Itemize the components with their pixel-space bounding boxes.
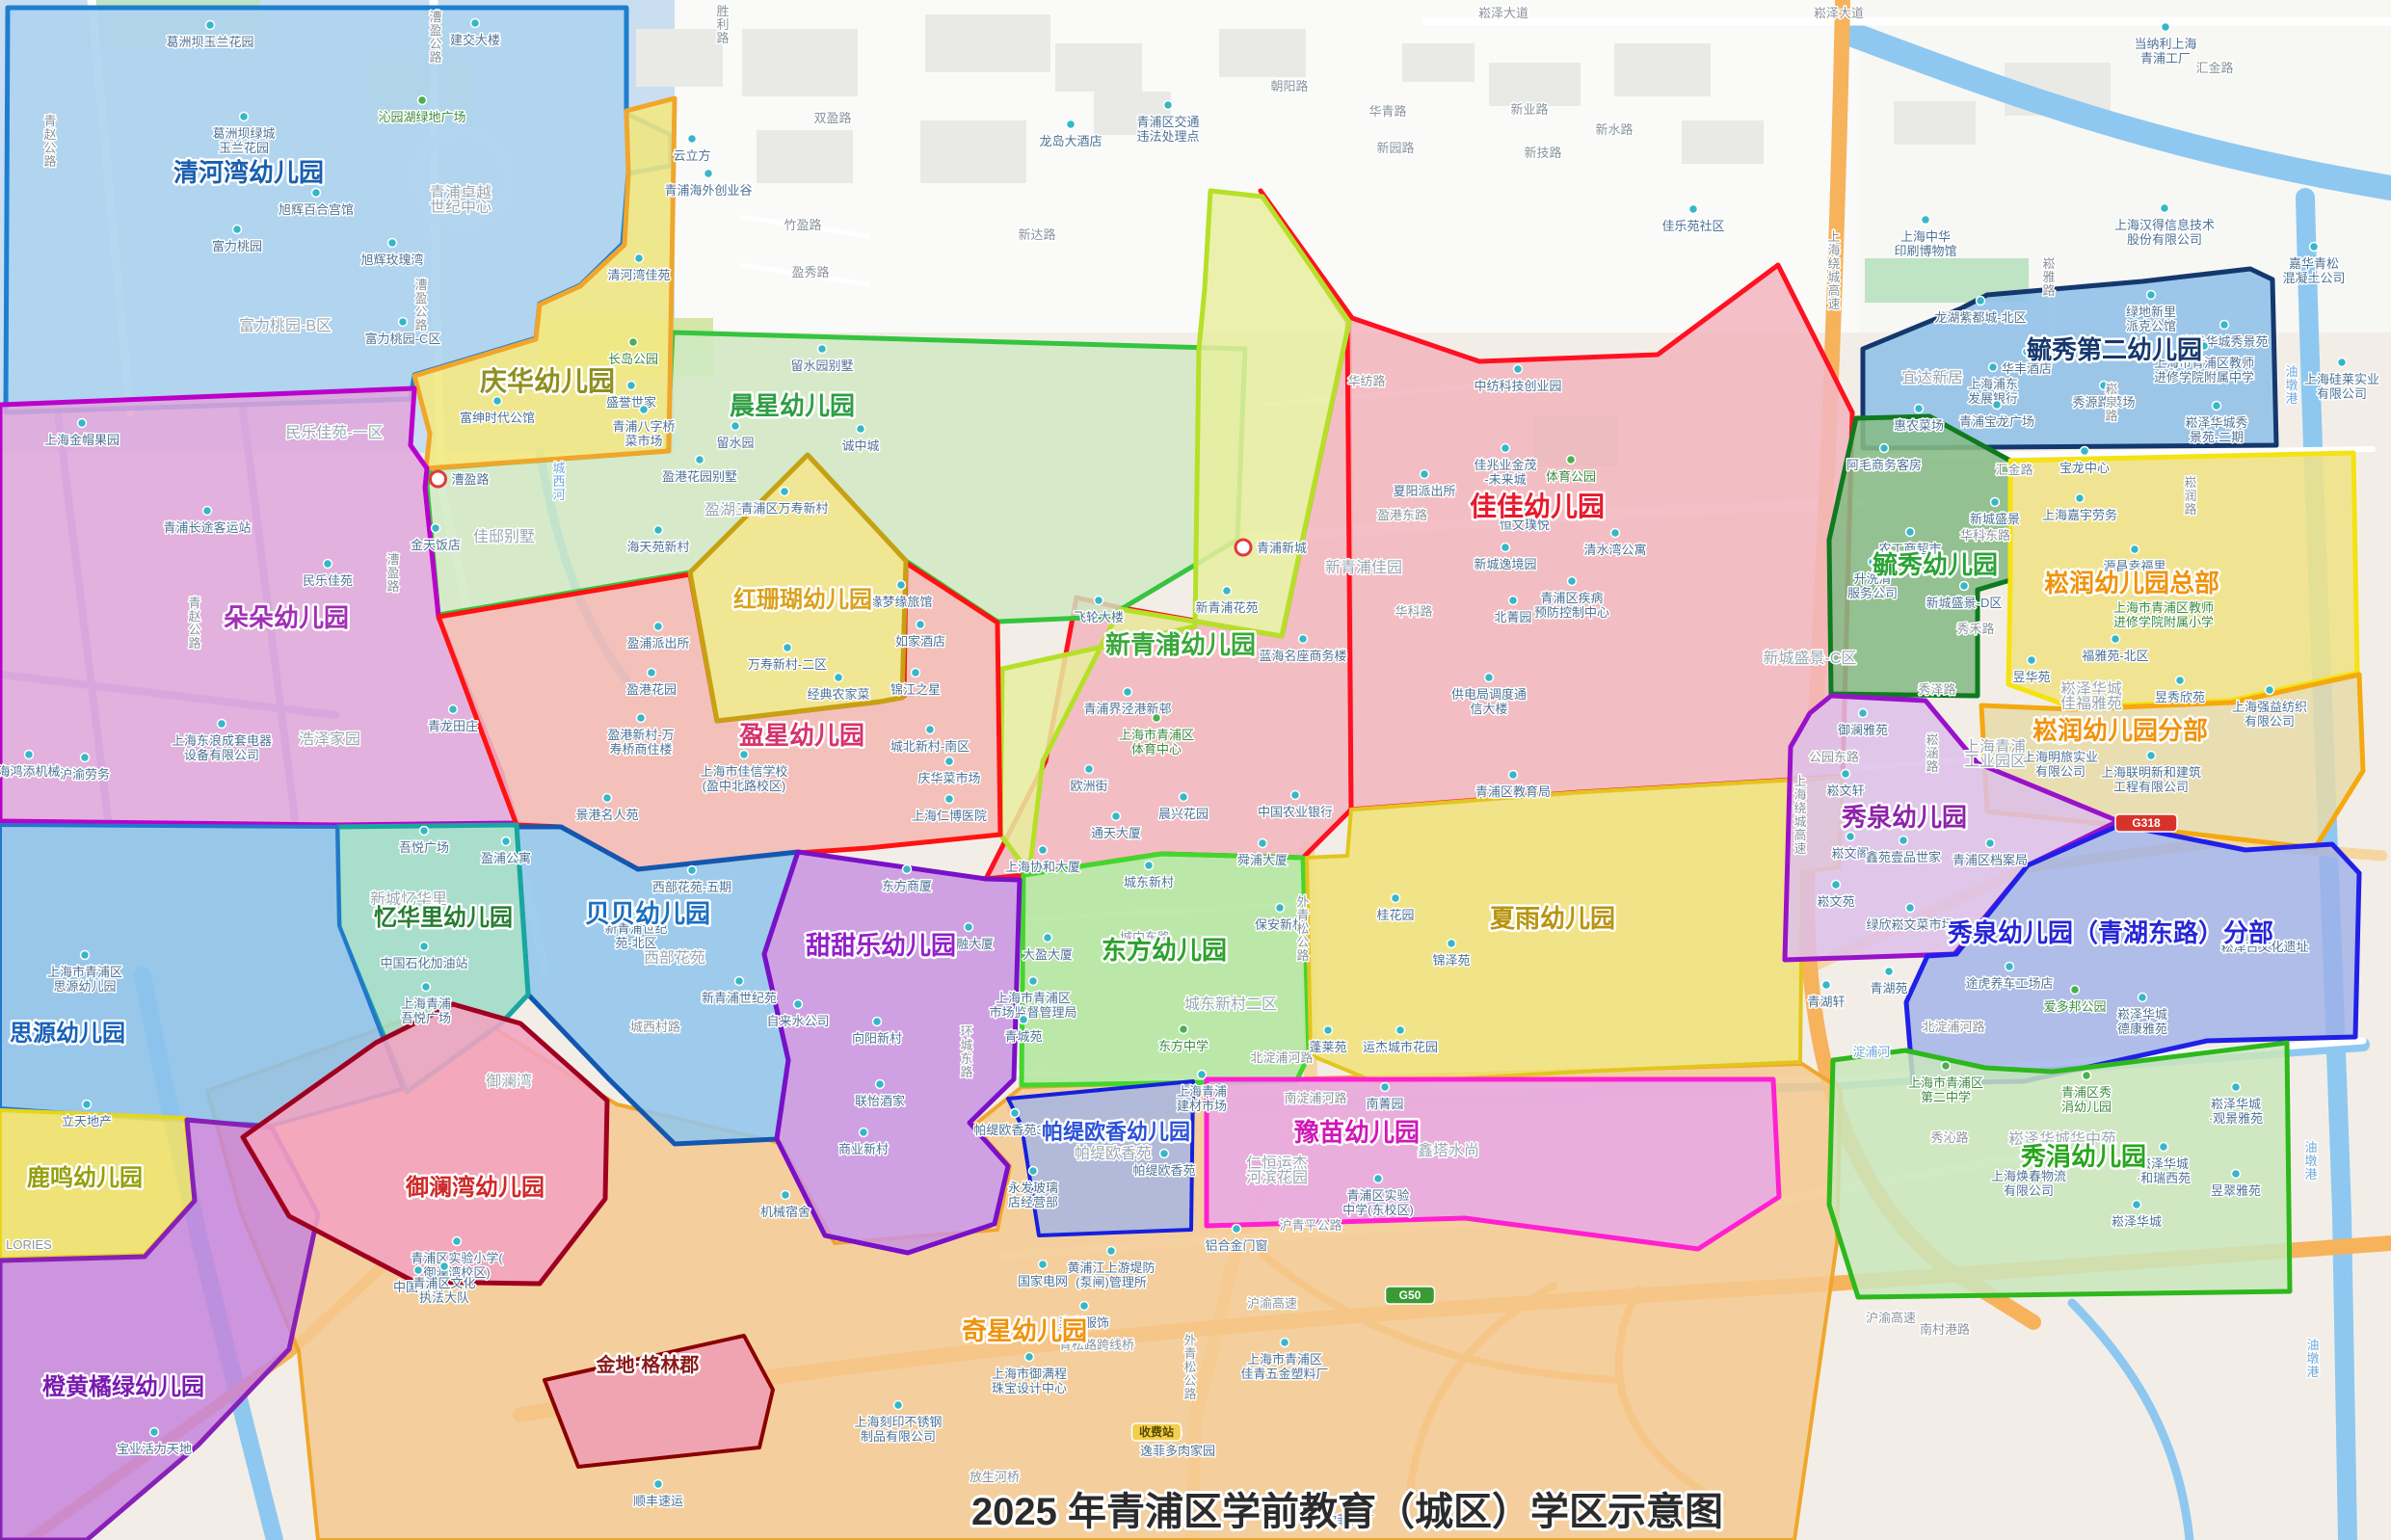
- poi-label: 晨兴花园: [1158, 807, 1209, 821]
- poi-dot-icon: [897, 581, 906, 590]
- poi-label: 西部花苑: [644, 949, 705, 967]
- poi-label: 海天苑新村: [626, 540, 689, 554]
- poi-dot-icon: [2161, 204, 2169, 213]
- road-label: 漕盈公路: [429, 10, 441, 65]
- poi-dot-icon: [629, 338, 638, 347]
- poi-dot-icon: [453, 1237, 462, 1246]
- poi-dot-icon: [399, 318, 408, 327]
- poi-label: 青龙田庄: [428, 719, 478, 733]
- poi-label: 秀源路菜场: [2072, 395, 2135, 410]
- poi-label: 民乐佳苑: [303, 573, 353, 588]
- poi-dot-icon: [1514, 365, 1523, 374]
- poi-label: 新青浦世纪苑: [702, 991, 777, 1005]
- district-label-yihuali: 忆华里幼儿园: [374, 904, 513, 931]
- poi-label: 青浦区万寿新村: [740, 501, 828, 516]
- poi-dot-icon: [1859, 709, 1868, 718]
- poi-label: 上海浦东发展银行: [1968, 377, 2018, 406]
- poi-label: 上海联明新和建筑工程有限公司: [2101, 765, 2201, 794]
- district-label-xiujuan: 秀涓幼儿园: [2020, 1142, 2146, 1171]
- poi-label: 盈浦公寓: [481, 851, 531, 865]
- poi-label: 富力桃园-C区: [365, 332, 441, 346]
- poi-dot-icon: [1039, 1261, 1048, 1269]
- poi-label: 商业新村: [838, 1142, 889, 1156]
- poi-dot-icon: [1915, 405, 1924, 413]
- poi-label: 盈港花园: [626, 682, 677, 697]
- poi-dot-icon: [1029, 977, 1038, 986]
- district-label-songrun-br: 崧润幼儿园分部: [2032, 716, 2208, 745]
- poi-dot-icon: [1153, 714, 1161, 723]
- water-label: 油墩港: [2304, 1140, 2317, 1182]
- poi-dot-icon: [388, 239, 397, 248]
- poi-dot-icon: [432, 524, 440, 533]
- poi-dot-icon: [203, 507, 212, 516]
- poi-label: 自来水公司: [766, 1014, 829, 1028]
- poi-label: 青浦新城: [1257, 541, 1307, 555]
- poi-dot-icon: [2071, 986, 2080, 995]
- poi-dot-icon: [876, 1080, 885, 1089]
- poi-dot-icon: [1846, 833, 1855, 841]
- map-svg: 葛洲坝玉兰花园建交大楼沁园湖绿地广场葛洲坝绿城玉兰花园旭辉百合宫馆富力桃园旭辉玫…: [0, 0, 2391, 1540]
- poi-label: 锦泽苑: [1432, 953, 1470, 968]
- district-label-qinghewan: 清河湾幼儿园: [173, 158, 324, 187]
- road-label: 北淀浦河路: [1250, 1050, 1313, 1065]
- poi-label: 富力桃园-B区: [239, 317, 332, 334]
- base-zone: [757, 130, 853, 183]
- poi-label: 青浦卓越世纪中心: [430, 184, 491, 216]
- poi-dot-icon: [1977, 297, 1985, 305]
- poi-label: 经典农家菜: [807, 687, 869, 702]
- road-label: 上海绕城高速: [1827, 229, 1840, 311]
- water-label: 淀浦河: [1852, 1045, 1890, 1059]
- poi-dot-icon: [1448, 940, 1456, 948]
- poi-dot-icon: [1993, 401, 2002, 410]
- poi-label: 旭辉百合宫馆: [279, 202, 354, 217]
- water-label: 油墩港: [2285, 364, 2298, 406]
- poi-dot-icon: [25, 751, 34, 759]
- poi-label: 云立方: [673, 148, 710, 163]
- poi-label: 爱多邦公园: [2043, 999, 2106, 1014]
- poi-dot-icon: [740, 751, 749, 759]
- poi-label: 青浦区交通违法处理点: [1136, 115, 1199, 144]
- poi-label: 上海市佳信学校(盈中北路校区): [700, 764, 787, 793]
- poi-label: 昱翠雅苑: [2211, 1183, 2261, 1198]
- poi-label: 如家酒店: [895, 634, 945, 649]
- poi-dot-icon: [1067, 120, 1076, 129]
- poi-label: 上海协和大厦: [1005, 860, 1080, 874]
- poi-dot-icon: [873, 1018, 882, 1026]
- poi-dot-icon: [2232, 1083, 2241, 1092]
- road-label: 南淀浦河路: [1284, 1091, 1346, 1105]
- base-zone: [636, 29, 723, 87]
- road-badge-label: G50: [1399, 1288, 1421, 1302]
- district-label-luming: 鹿鸣幼儿园: [27, 1164, 143, 1191]
- poi-label: 新青浦花苑: [1195, 600, 1258, 615]
- poi-dot-icon: [1689, 205, 1698, 214]
- district-label-beibei: 贝贝幼儿园: [585, 899, 710, 928]
- poi-label: 佳邸别墅: [473, 528, 535, 545]
- poi-label: 国家电网: [1018, 1274, 1068, 1288]
- poi-label: 宝龙中心: [2059, 461, 2110, 475]
- poi-dot-icon: [1885, 968, 1894, 976]
- poi-label: 上海中华印刷博物馆: [1894, 229, 1956, 258]
- poi-label: 上海青浦吾悦广场: [401, 996, 451, 1025]
- poi-label: 盈港花园别墅: [662, 469, 737, 484]
- district-label-jindi: 金地·格林郡: [596, 1353, 700, 1376]
- poi-label: 仁恒运杰河滨花园: [1246, 1155, 1308, 1186]
- poi-dot-icon: [857, 425, 865, 434]
- poi-label: 桂花园: [1376, 908, 1414, 922]
- poi-dot-icon: [1095, 597, 1103, 605]
- road-label: 崧泽大道: [1478, 6, 1528, 20]
- road-label: 南村港路: [1920, 1322, 1970, 1337]
- poi-dot-icon: [860, 1128, 868, 1137]
- base-zone: [1894, 101, 1976, 145]
- poi-label: 机械宿舍: [760, 1205, 810, 1219]
- road-label: 沪渝高速: [1247, 1296, 1297, 1311]
- poi-label: 中纺科技创业园: [1474, 379, 1561, 393]
- poi-dot-icon: [781, 488, 789, 496]
- district-label-yuxiu-dier: 毓秀第二幼儿园: [2027, 335, 2202, 364]
- poi-dot-icon: [1281, 1339, 1289, 1347]
- poi-label: 上海仁博医院: [912, 809, 987, 823]
- poi-dot-icon: [312, 189, 321, 198]
- poi-dot-icon: [206, 21, 215, 30]
- poi-label: 新青浦佳园: [1325, 559, 1402, 576]
- road-label: 汇金路: [2195, 61, 2233, 75]
- poi-dot-icon: [1324, 1026, 1333, 1035]
- poi-label: 青浦区疾病预防控制中心: [1534, 591, 1609, 620]
- poi-dot-icon: [1906, 528, 1915, 537]
- poi-dot-icon: [784, 644, 792, 652]
- district-polygon-tiantianle: [764, 852, 1020, 1253]
- poi-dot-icon: [1011, 1109, 1020, 1118]
- district-label-xiuquan: 秀泉幼儿园: [1841, 803, 1967, 832]
- poi-label: 体育公园: [1546, 469, 1596, 484]
- poi-label: 上海汉得信息技术股份有限公司: [2114, 218, 2215, 247]
- poi-dot-icon: [688, 866, 697, 875]
- poi-dot-icon: [1942, 1062, 1951, 1071]
- road-badge-label: G318: [2132, 816, 2161, 830]
- poi-label: 民乐佳苑-一区: [285, 424, 383, 441]
- poi-label: 崧文轩: [1826, 783, 1864, 798]
- water-label: 城西河: [552, 461, 565, 502]
- poi-dot-icon: [603, 794, 612, 803]
- poi-label: 惠农菜场: [1894, 418, 1944, 433]
- poi-dot-icon: [1501, 544, 1510, 552]
- poi-label: 庆华菜市场: [917, 771, 980, 785]
- poi-label: 黄浦江上游堤防(泵闸)管理所: [1067, 1261, 1155, 1289]
- road-label: 华青路: [1368, 104, 1406, 119]
- road-label: 崧涵路: [1926, 732, 1938, 774]
- poi-dot-icon: [1509, 771, 1518, 780]
- poi-dot-icon: [2133, 1201, 2141, 1209]
- poi-dot-icon: [1180, 1025, 1188, 1034]
- poi-label: 崧文阁: [1831, 846, 1869, 861]
- poi-label: 崧泽华城·观景雅苑: [2209, 1097, 2263, 1126]
- poi-dot-icon: [731, 422, 740, 431]
- poi-dot-icon: [654, 526, 663, 535]
- poi-dot-icon: [324, 560, 332, 569]
- poi-dot-icon: [1223, 587, 1232, 596]
- poi-label: 阿毛商务客房: [1846, 458, 1922, 472]
- poi-dot-icon: [1112, 812, 1121, 821]
- poi-dot-icon: [1906, 904, 1915, 913]
- poi-dot-icon: [1991, 498, 2000, 507]
- map-title: 2025 年青浦区学前教育（城区）学区示意图: [971, 1491, 1723, 1533]
- district-label-chenxing: 晨星幼儿园: [730, 391, 855, 420]
- poi-dot-icon: [440, 1262, 449, 1271]
- poi-dot-icon: [1822, 981, 1831, 990]
- poi-dot-icon: [150, 1428, 159, 1437]
- district-label-siyuan: 思源幼儿园: [10, 1020, 125, 1047]
- poi-label: 宜达新居: [1901, 369, 1963, 386]
- base-zone: [1614, 43, 1711, 96]
- poi-label: 飞轮大楼: [1074, 610, 1124, 624]
- poi-label: 青湖轩: [1807, 995, 1845, 1009]
- poi-dot-icon: [240, 113, 249, 121]
- poi-dot-icon: [2131, 545, 2139, 554]
- poi-dot-icon: [1124, 688, 1132, 697]
- poi-label: 鑫塔水尚: [1418, 1141, 1479, 1159]
- poi-label: 通天大厦: [1091, 826, 1141, 840]
- poi-label: 青城苑: [1004, 1029, 1042, 1044]
- poi-dot-icon: [965, 923, 973, 932]
- poi-label: 上海嘉宇劳务: [2042, 508, 2117, 522]
- poi-label: 联怡酒家: [855, 1094, 905, 1108]
- poi-dot-icon: [1567, 456, 1576, 465]
- road-label: 盈港东路: [1377, 508, 1427, 522]
- poi-label: 宝业活力天地: [117, 1442, 192, 1456]
- road-label: 双盈路: [813, 111, 851, 125]
- district-label-qinghua: 庆华幼儿园: [480, 365, 615, 396]
- poi-label: 崧泽华城: [2112, 1214, 2162, 1229]
- poi-dot-icon: [635, 254, 644, 263]
- district-label-yingxing: 盈星幼儿园: [738, 721, 864, 750]
- poi-label: 诚中城: [841, 438, 879, 453]
- district-label-patiouxiang: 帕缇欧香幼儿园: [1042, 1120, 1190, 1144]
- poi-label: 盈港新村-万寿桥商住楼: [607, 728, 674, 757]
- poi-label: 南菁园: [1366, 1097, 1403, 1111]
- road-label: 新达路: [1018, 227, 1055, 242]
- poi-label: 嘉华青松混凝土公司: [2282, 256, 2345, 285]
- poi-label: 青浦海外创业谷: [664, 183, 752, 198]
- poi-dot-icon: [1080, 1302, 1089, 1311]
- poi-dot-icon: [83, 1101, 92, 1109]
- poi-dot-icon: [1039, 846, 1048, 855]
- poi-dot-icon: [1832, 881, 1841, 889]
- poi-dot-icon: [78, 419, 87, 428]
- road-label: 上海绕城高速: [1793, 774, 1806, 856]
- poi-label: 崧文苑: [1817, 894, 1854, 909]
- poi-label: 留水园: [716, 436, 754, 450]
- poi-dot-icon: [1842, 770, 1850, 779]
- poi-dot-icon: [2147, 752, 2156, 760]
- district-label-jiajia: 佳佳幼儿园: [1470, 491, 1605, 521]
- poi-dot-icon: [654, 623, 663, 631]
- poi-label: 帕缇欧香苑: [1075, 1145, 1152, 1162]
- road-label: 漕盈路: [386, 552, 399, 594]
- poi-label: 吾悦广场: [399, 840, 449, 855]
- poi-label: 向阳新村: [852, 1031, 902, 1046]
- poi-label: 御澜雅苑: [1838, 723, 1888, 737]
- poi-label: 留水园别墅: [790, 358, 853, 373]
- poi-label: 上海青浦工业园区: [1964, 738, 2026, 770]
- road-label: 崧泉路: [2105, 382, 2117, 423]
- poi-dot-icon: [2006, 963, 2014, 971]
- road-label: 沪渝高速: [1866, 1311, 1916, 1325]
- district-label-yumiao: 豫苗幼儿园: [1294, 1118, 1420, 1147]
- poi-label: 东方中学: [1158, 1039, 1209, 1053]
- poi-label: 逸菲多肉家园: [1140, 1444, 1215, 1458]
- poi-dot-icon: [233, 226, 242, 234]
- poi-label: 立天地产: [62, 1114, 112, 1128]
- poi-label: 缘梦缘旅馆: [869, 595, 932, 609]
- poi-dot-icon: [1986, 839, 1995, 848]
- poi-label: 葛洲坝绿城玉兰花园: [212, 126, 275, 155]
- road-label: 秀沁路: [1930, 1130, 1968, 1145]
- poi-label: 漕盈路: [451, 472, 489, 487]
- poi-label: 崧泽华城秀景苑-二期: [2185, 415, 2247, 444]
- poi-label: 浩泽家园: [299, 730, 360, 748]
- road-label: 朝阳路: [1270, 79, 1308, 93]
- district-label-hongshanhu: 红珊瑚幼儿园: [733, 586, 872, 613]
- base-zone: [1219, 29, 1306, 77]
- road-label: 城西村路: [630, 1020, 680, 1034]
- poi-dot-icon: [917, 621, 925, 629]
- poi-dot-icon: [1160, 1150, 1169, 1158]
- base-zone: [920, 120, 1026, 183]
- road-label: 盈秀路: [791, 265, 829, 279]
- poi-dot-icon: [2266, 686, 2274, 695]
- base-zone: [1489, 63, 1581, 106]
- poi-label: 大盈大厦: [1023, 947, 1073, 962]
- district-label-qixing: 奇星幼儿园: [962, 1316, 1087, 1345]
- poi-label: 蓝海名座商务楼: [1259, 649, 1346, 663]
- poi-label: 上海市青浦区思源幼儿园: [47, 965, 122, 994]
- poi-label: 上海东浪成套电器设备有限公司: [172, 733, 272, 762]
- poi-label: 新城盛景: [1970, 512, 2020, 526]
- poi-dot-icon: [1381, 1083, 1390, 1092]
- poi-label: 龙岛大酒店: [1039, 134, 1102, 148]
- poi-label: 青浦长途客运站: [163, 520, 251, 535]
- road-label: 华科东路: [1960, 528, 2010, 543]
- poi-dot-icon: [1107, 1247, 1116, 1256]
- poi-label: 东方商厦: [882, 879, 932, 893]
- poi-dot-icon: [818, 345, 827, 354]
- poi-label: 青湖苑: [1870, 981, 1907, 996]
- poi-label: 崧泽华城德康雅苑: [2117, 1007, 2167, 1036]
- road-label: 青赵公路: [43, 114, 56, 169]
- district-label-xinqingpu: 新青浦幼儿园: [1105, 630, 1256, 659]
- poi-dot-icon: [945, 795, 954, 804]
- road-label: 青赵公路: [188, 596, 200, 651]
- poi-label: 蓬莱苑: [1309, 1040, 1346, 1054]
- poi-label: 沪渝劳务: [60, 767, 110, 782]
- poi-dot-icon: [1421, 470, 1429, 479]
- poi-label: 舜浦大厦: [1237, 853, 1288, 867]
- poi-label: 崧泽华城佳福雅苑: [2060, 680, 2122, 712]
- poi-dot-icon: [420, 827, 429, 836]
- poi-label: 顺丰速运: [633, 1494, 683, 1508]
- poi-dot-icon: [640, 406, 649, 414]
- district-label-songrun-hq: 崧润幼儿园总部: [2044, 569, 2219, 597]
- poi-dot-icon: [1085, 765, 1094, 774]
- poi-dot-icon: [1044, 934, 1052, 943]
- poi-label: 西部花苑-五期: [652, 880, 731, 894]
- metro-station-icon: [431, 471, 446, 487]
- poi-label: 上海市青浦区市场监督管理局: [989, 991, 1076, 1020]
- road-label: 胜利路: [716, 4, 729, 45]
- poi-label: 永发玻璃店经营部: [1008, 1181, 1058, 1209]
- poi-dot-icon: [493, 397, 502, 406]
- base-zone: [1682, 120, 1764, 164]
- poi-dot-icon: [422, 983, 431, 992]
- poi-label: 富力桃园: [212, 239, 262, 253]
- poi-label: 御澜湾: [486, 1073, 532, 1090]
- poi-dot-icon: [2028, 656, 2036, 665]
- poi-dot-icon: [1611, 529, 1620, 538]
- poi-dot-icon: [81, 951, 90, 960]
- poi-label: 龙湖紫都城-北区: [1934, 310, 2026, 325]
- poi-label: 清水湾公寓: [1583, 543, 1646, 557]
- map-canvas: 葛洲坝玉兰花园建交大楼沁园湖绿地广场葛洲坝绿城玉兰花园旭辉百合宫馆富力桃园旭辉玫…: [0, 0, 2391, 1540]
- poi-dot-icon: [2232, 1170, 2241, 1179]
- road-label: 放生河桥: [970, 1470, 1020, 1484]
- poi-label: 运杰城市花园: [1363, 1040, 1438, 1054]
- poi-label: 建交大楼: [450, 33, 500, 47]
- poi-label: 葛洲坝玉兰花园: [166, 35, 253, 49]
- poi-dot-icon: [1291, 791, 1300, 800]
- poi-dot-icon: [1392, 894, 1400, 903]
- poi-dot-icon: [1900, 836, 1908, 845]
- poi-label: 青浦区实验中学(东校区): [1342, 1188, 1414, 1217]
- poi-label: 新城盛景-C区: [1764, 650, 1857, 667]
- poi-dot-icon: [1180, 793, 1188, 802]
- poi-label: 沁园湖绿地广场: [378, 110, 465, 124]
- poi-dot-icon: [627, 382, 636, 390]
- district-label-chenghuangjulv: 橙黄橘绿幼儿园: [42, 1373, 204, 1400]
- poi-dot-icon: [1025, 1353, 1034, 1362]
- road-label: 汇金路: [1995, 463, 2032, 477]
- poi-label: 长岛公园: [608, 352, 658, 366]
- poi-dot-icon: [2338, 358, 2347, 367]
- poi-label: 绿地新里派克公馆: [2126, 305, 2176, 333]
- poi-label: 上海市青浦区佳青五金塑料厂: [1240, 1352, 1328, 1381]
- poi-dot-icon: [735, 977, 744, 986]
- poi-dot-icon: [2213, 402, 2221, 411]
- road-label: 沪青平公路: [1279, 1218, 1342, 1233]
- poi-dot-icon: [218, 720, 226, 729]
- road-label: LORIES: [6, 1237, 52, 1252]
- poi-dot-icon: [648, 669, 656, 677]
- poi-dot-icon: [2083, 1072, 2091, 1080]
- poi-label: 佳乐苑社区: [1661, 219, 1724, 233]
- poi-dot-icon: [794, 1000, 803, 1009]
- poi-dot-icon: [1989, 363, 1998, 372]
- poi-label: 金天饭店: [411, 538, 461, 552]
- road-label: 秀泽路: [1918, 682, 1955, 697]
- district-label-xiayu: 夏雨幼儿园: [1490, 904, 1615, 933]
- poi-label: 上海金帽果园: [44, 433, 120, 447]
- poi-dot-icon: [1145, 862, 1154, 870]
- poi-label: 盈浦派出所: [626, 636, 689, 651]
- poi-label: 绿欣崧文菜市场: [1866, 917, 1953, 932]
- poi-label: 清河湾佳苑: [607, 268, 670, 282]
- poi-label: 上海刻印不锈钢制品有限公司: [854, 1415, 942, 1444]
- poi-dot-icon: [696, 456, 704, 465]
- poi-dot-icon: [2147, 291, 2156, 300]
- poi-label: 青浦区文化执法大队: [412, 1276, 475, 1305]
